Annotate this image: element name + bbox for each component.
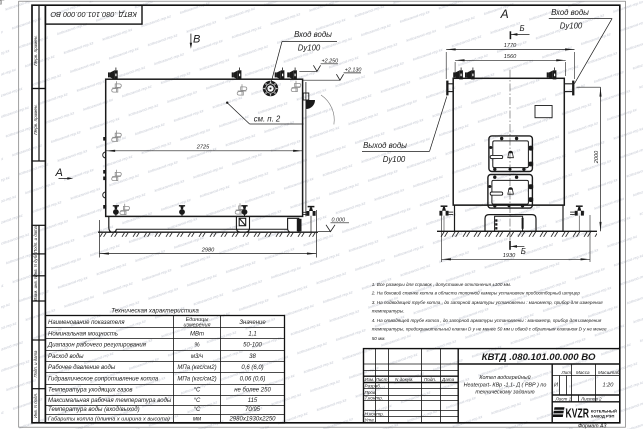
svg-text:4. На отводящей трубе котла ,: 4. На отводящей трубе котла , до запорно… xyxy=(372,317,602,323)
svg-text:Т.контр.: Т.контр. xyxy=(365,396,384,401)
svg-text:2. На боковой стенке котла в о: 2. На боковой стенке котла в области топ… xyxy=(371,290,581,296)
svg-text:70/95: 70/95 xyxy=(245,407,261,413)
svg-text:Пров.: Пров. xyxy=(365,390,377,395)
svg-text:Подп.: Подп. xyxy=(424,377,436,382)
svg-text:Лист 1: Лист 1 xyxy=(555,396,572,401)
svg-text:50 мм.: 50 мм. xyxy=(372,336,386,341)
svg-text:°С: °С xyxy=(194,407,201,413)
svg-text:0,06 (0,6): 0,06 (0,6) xyxy=(240,376,266,382)
svg-text:техническому заданию: техническому заданию xyxy=(475,390,534,396)
svg-text:1560: 1560 xyxy=(504,54,517,60)
svg-text:А: А xyxy=(55,167,63,179)
svg-text:Взам. инв. N: Взам. инв. N xyxy=(33,275,38,301)
svg-text:Техническая характеристика: Техническая характеристика xyxy=(111,307,199,314)
svg-text:КВТД .080.101.00.000 ВО: КВТД .080.101.00.000 ВО xyxy=(482,352,596,363)
svg-text:КВТД .080.101.00.000 ВО: КВТД .080.101.00.000 ВО xyxy=(50,10,137,19)
svg-text:Расход воды: Расход воды xyxy=(48,354,84,360)
svg-text:Н.контр.: Н.контр. xyxy=(365,411,384,416)
svg-text:Б: Б xyxy=(521,247,526,256)
svg-text:Подп. и дата: Подп. и дата xyxy=(33,350,38,378)
svg-text:Температура воды (вход/выход: Температура воды (вход/выход) xyxy=(48,407,140,413)
svg-text:Dy100: Dy100 xyxy=(560,21,583,30)
svg-text:Перв. примен.: Перв. примен. xyxy=(33,35,38,66)
svg-text:Габариты котла (длинна х ш: Габариты котла (длинна х ширина х высота… xyxy=(48,417,170,423)
svg-text:мм: мм xyxy=(193,417,201,423)
svg-text:МПа (кгс/см2): МПа (кгс/см2) xyxy=(177,365,216,371)
svg-text:+2.250: +2.250 xyxy=(322,59,339,65)
svg-text:Дата: Дата xyxy=(441,377,455,382)
svg-text:Наименование показателя: Наименование показателя xyxy=(48,320,125,326)
svg-text:Изм. Лист: Изм. Лист xyxy=(365,377,388,382)
svg-text:Разраб.: Разраб. xyxy=(365,384,382,389)
svg-text:2980х1930х2250: 2980х1930х2250 xyxy=(228,417,276,423)
svg-text:Heaterpart- КВр -1,1- Д ( РВР: Heaterpart- КВр -1,1- Д ( РВР ) по xyxy=(464,382,547,388)
svg-text:измерения: измерения xyxy=(184,323,211,329)
svg-text:N докум.: N докум. xyxy=(395,377,414,382)
svg-text:°С: °С xyxy=(194,388,201,394)
svg-text:KVZR: KVZR xyxy=(566,406,590,420)
svg-text:1930: 1930 xyxy=(503,253,516,259)
svg-text:не более 250: не более 250 xyxy=(234,388,271,394)
svg-text:Масса: Масса xyxy=(576,370,590,375)
svg-text:3. На подводящей трубе котла ,: 3. На подводящей трубе котла , до запорн… xyxy=(372,299,603,305)
svg-text:2980: 2980 xyxy=(201,247,215,253)
svg-text:Котел водогрейный: Котел водогрейный xyxy=(479,374,530,381)
svg-text:МВт: МВт xyxy=(190,331,204,337)
svg-text:Лит.: Лит. xyxy=(561,370,573,375)
svg-text:ЗАВОД РЭП: ЗАВОД РЭП xyxy=(591,414,615,419)
svg-text:Масштаб: Масштаб xyxy=(598,370,620,375)
svg-text:2000: 2000 xyxy=(594,150,600,164)
svg-text:Б: Б xyxy=(520,24,525,33)
svg-text:Диапазон рабочего регулирова: Диапазон рабочего регулирования xyxy=(47,343,147,349)
svg-text:Значение: Значение xyxy=(239,320,266,326)
svg-text:А: А xyxy=(500,7,509,21)
svg-text:Вход воды: Вход воды xyxy=(294,30,332,39)
svg-text:Гидравлическое сопротивление: Гидравлическое сопротивление котла xyxy=(48,376,159,382)
svg-text:Максимальная рабочая темпера: Максимальная рабочая температура воды xyxy=(48,398,172,404)
svg-text:%: % xyxy=(194,343,200,349)
svg-text:Dy100: Dy100 xyxy=(383,155,406,164)
svg-text:см. п. 2: см. п. 2 xyxy=(254,115,281,124)
svg-text:температуры, предохранительный: температуры, предохранительный клапан D … xyxy=(372,326,607,332)
svg-text:2725: 2725 xyxy=(196,144,210,150)
svg-text:50-100: 50-100 xyxy=(243,343,262,349)
svg-text:1,1: 1,1 xyxy=(248,331,256,337)
svg-text:Подп. и дата: Подп. и дата xyxy=(33,225,38,253)
svg-text:Выход воды: Выход воды xyxy=(363,141,407,150)
svg-text:38: 38 xyxy=(249,354,256,360)
svg-text:м3/ч: м3/ч xyxy=(191,354,203,360)
svg-text:Номинальная мощность: Номинальная мощность xyxy=(48,331,118,337)
svg-text:Формат А3: Формат А3 xyxy=(578,424,606,430)
svg-text:И: И xyxy=(554,383,558,389)
svg-text:Температура уходящих газов: Температура уходящих газов xyxy=(48,388,133,394)
svg-text:Dy100: Dy100 xyxy=(298,44,321,53)
svg-text:Инв. N подл.: Инв. N подл. xyxy=(33,393,38,418)
svg-text:1:20: 1:20 xyxy=(603,383,615,389)
svg-text:Инв. N дубл.: Инв. N дубл. xyxy=(33,252,38,277)
svg-text:+2.130: +2.130 xyxy=(345,68,362,74)
svg-text:температуры.: температуры. xyxy=(372,308,405,313)
svg-text:Вход воды: Вход воды xyxy=(551,8,589,17)
svg-text:МПа (кгс/см2): МПа (кгс/см2) xyxy=(177,376,216,382)
svg-text:1. Все размеры для справок , д: 1. Все размеры для справок , допустимые … xyxy=(372,282,512,287)
svg-text:Утв.: Утв. xyxy=(365,418,375,423)
svg-text:°С: °С xyxy=(194,398,201,404)
svg-text:Рабочее давление воды: Рабочее давление воды xyxy=(48,365,116,371)
svg-text:В: В xyxy=(193,34,200,46)
svg-text:Перв. примен.: Перв. примен. xyxy=(33,104,38,135)
svg-text:0,6 (6,0): 0,6 (6,0) xyxy=(241,365,263,371)
svg-text:115: 115 xyxy=(248,398,258,404)
svg-text:Листов 2: Листов 2 xyxy=(580,396,602,401)
svg-text:1770: 1770 xyxy=(504,43,517,49)
